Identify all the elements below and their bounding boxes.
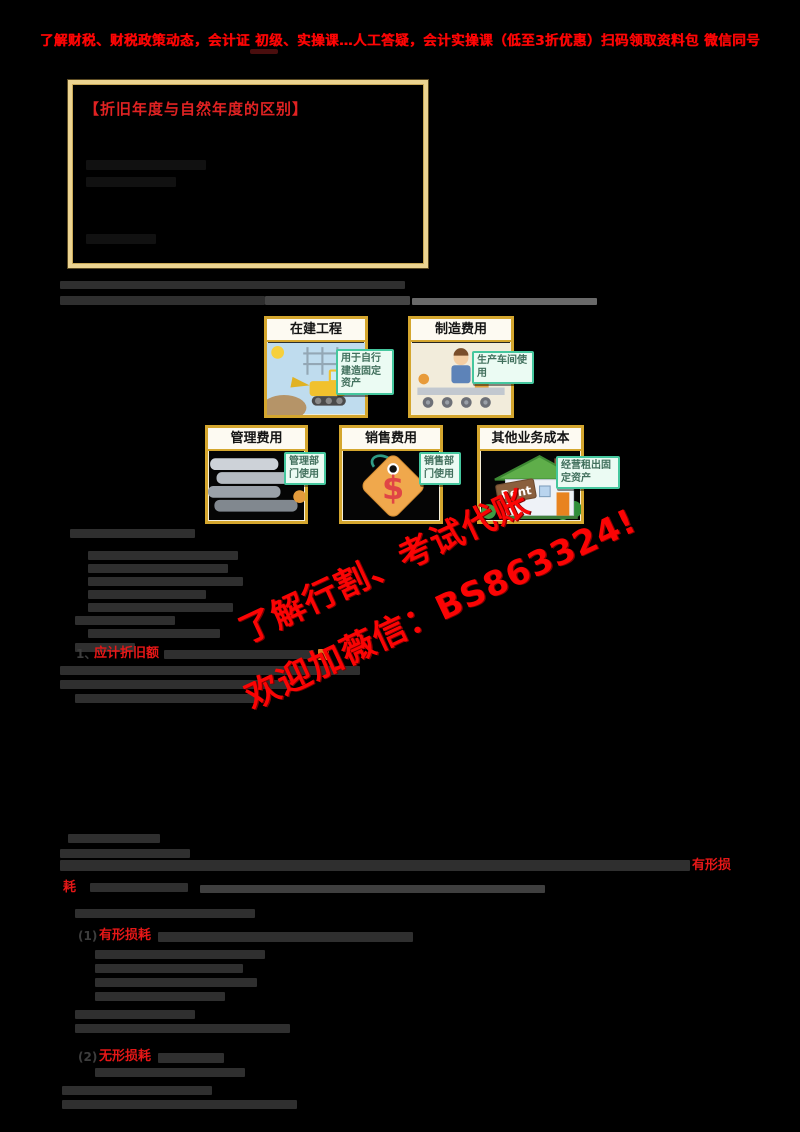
card-title: 管理费用 [208, 428, 305, 451]
redacted-text-line [95, 950, 265, 959]
point-2-number: (2) [78, 1051, 97, 1063]
redacted-text-line [62, 1086, 212, 1095]
redacted-text-line [86, 234, 156, 244]
redacted-text-line [265, 296, 410, 305]
note-production-workshop: 生产车间使用 [472, 351, 534, 384]
dollar-symbol: $ [382, 469, 404, 507]
redacted-text-line [60, 849, 190, 858]
redacted-text-line [90, 883, 188, 892]
info-box-title: 【折旧年度与自然年度的区别】 [84, 98, 308, 119]
top-banner-text: 了解财税、财税政策动态，会计证 初级、实操课…人工答疑，会计实操课（低至3折优惠… [0, 29, 800, 49]
card-title: 其他业务成本 [480, 428, 581, 451]
redacted-text-line [75, 1024, 290, 1033]
redacted-text-line [88, 629, 220, 638]
redacted-text-line [95, 1068, 245, 1077]
banner-smudge [250, 49, 278, 54]
redacted-text-line [60, 296, 265, 305]
redacted-text-line [88, 551, 238, 560]
redacted-text-line [86, 160, 206, 170]
note-self-construction: 用于自行建造固定资产 [336, 349, 394, 395]
redacted-text-line [75, 1010, 195, 1019]
redacted-text-line [75, 909, 255, 918]
document-page: 了解财税、财税政策动态，会计证 初级、实操课…人工答疑，会计实操课（低至3折优惠… [0, 0, 800, 1132]
card-title: 在建工程 [267, 319, 365, 342]
keyword-physical-wear-tail: 有形损 [692, 859, 731, 872]
redacted-text-line [68, 834, 160, 843]
note-admin-department: 管理部门使用 [284, 452, 326, 485]
redacted-text-line [95, 978, 257, 987]
note-sales-department: 销售部门使用 [419, 452, 461, 485]
redacted-text-line [88, 590, 206, 599]
redacted-text-line [70, 529, 195, 538]
keyword-tangible-loss: 有形损耗 [99, 929, 151, 942]
redacted-text-line [62, 1100, 297, 1109]
redacted-text-line [88, 577, 243, 586]
point-1-number: (1) [78, 930, 97, 942]
redacted-text-line [86, 177, 176, 187]
redacted-text-line [200, 885, 545, 893]
redacted-text-line [95, 964, 243, 973]
redacted-text-line [158, 1053, 224, 1063]
info-box: 【折旧年度与自然年度的区别】 [68, 80, 428, 268]
keyword-intangible-loss: 无形损耗 [99, 1050, 151, 1063]
redacted-text-line [158, 932, 413, 942]
card-title: 销售费用 [342, 428, 440, 451]
keyword-depreciable-amount: 应计折旧额 [94, 647, 159, 660]
redacted-text-line [412, 298, 597, 305]
card-title: 制造费用 [411, 319, 511, 342]
note-operating-lease: 经营租出固定资产 [556, 456, 620, 489]
redacted-text-line [75, 616, 175, 625]
keyword-physical-wear-head: 耗 [63, 881, 76, 894]
redacted-text-line [60, 281, 405, 289]
redacted-text-line [95, 992, 225, 1001]
redacted-text-line [75, 694, 255, 703]
redacted-text-line [60, 860, 690, 871]
redacted-text-line [88, 564, 228, 573]
redacted-text-line [88, 603, 233, 612]
